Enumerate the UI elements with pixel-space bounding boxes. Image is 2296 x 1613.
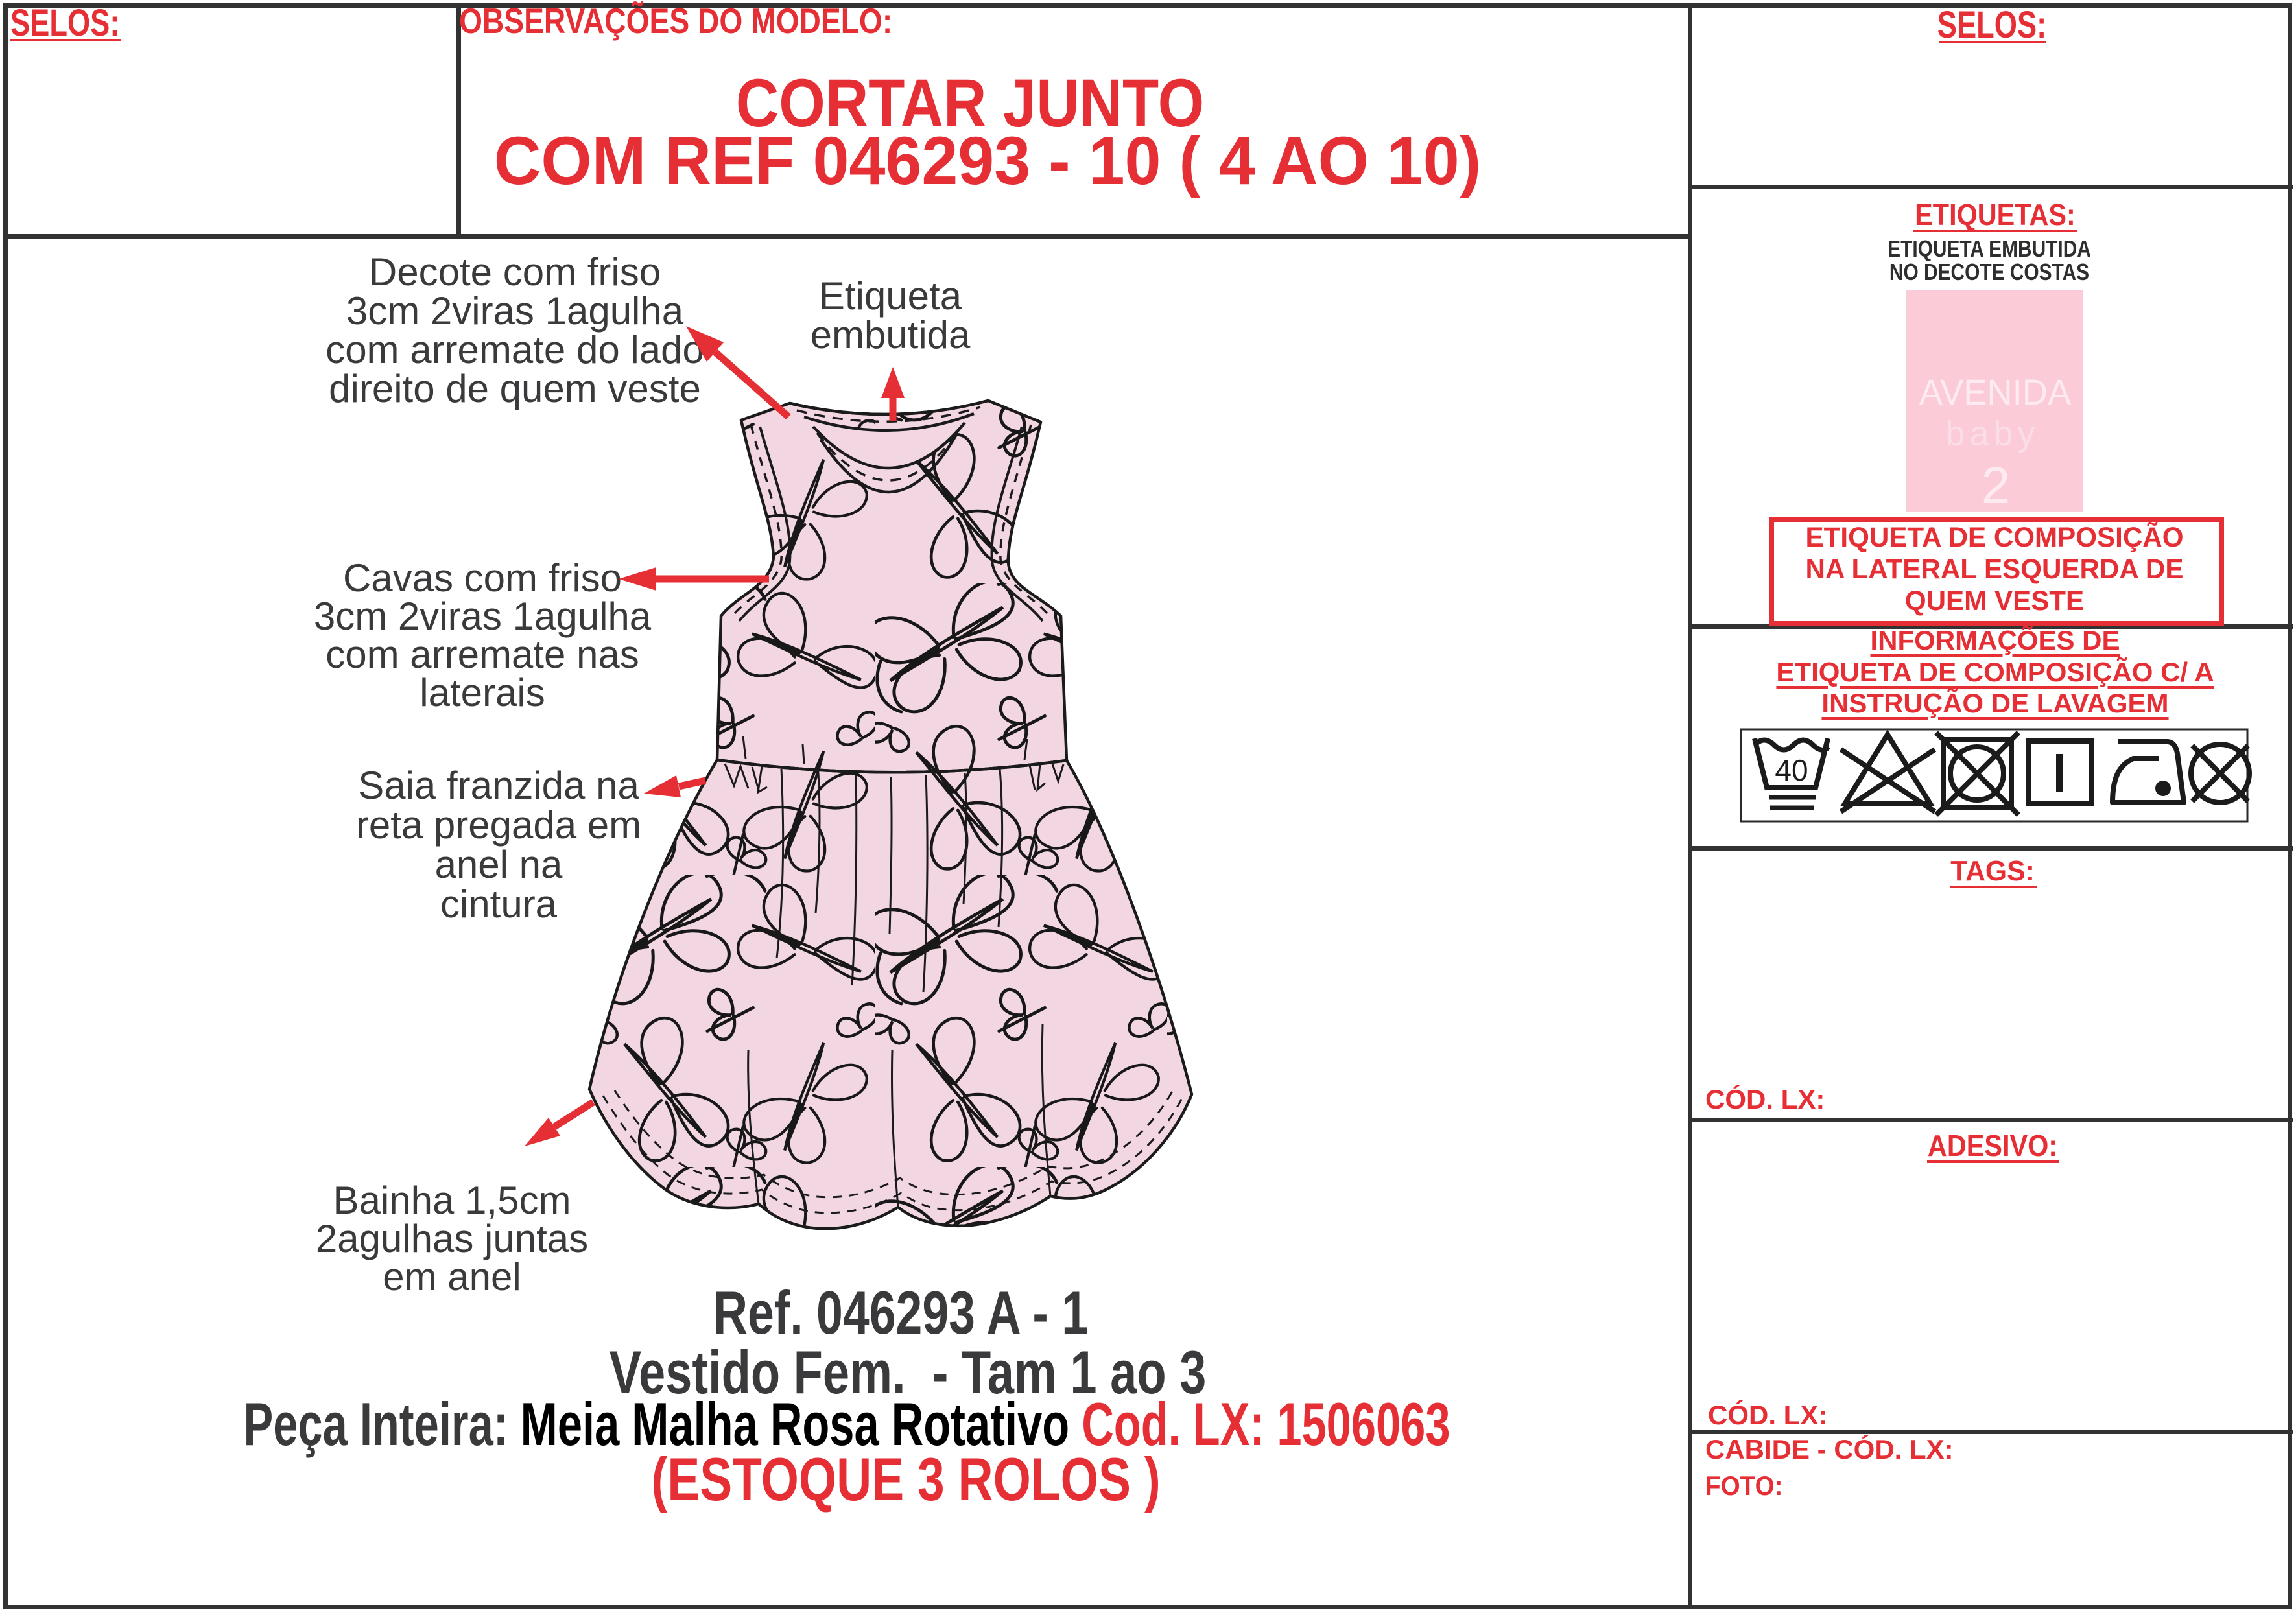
svg-text:40: 40 <box>1775 753 1808 787</box>
